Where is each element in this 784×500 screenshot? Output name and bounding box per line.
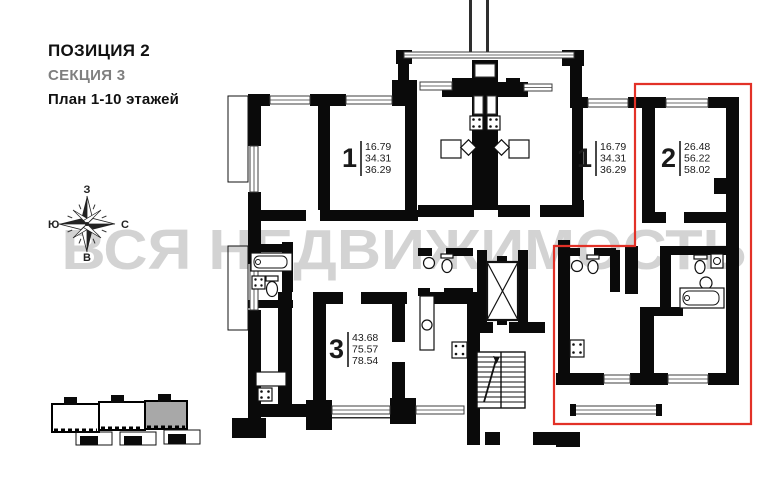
svg-text:36.29: 36.29 <box>600 164 626 176</box>
svg-text:34.31: 34.31 <box>365 153 391 165</box>
compass-label-top: З <box>84 184 91 196</box>
site-plan-section-3-highlighted <box>145 401 187 429</box>
apartment-label-2: 2 26.48 56.22 58.02 <box>661 141 710 176</box>
svg-text:16.79: 16.79 <box>365 141 391 153</box>
apartment-label-1a: 1 16.79 34.31 36.29 <box>342 141 391 176</box>
svg-text:56.22: 56.22 <box>684 153 710 165</box>
svg-text:34.31: 34.31 <box>600 153 626 165</box>
site-plan-section-2 <box>99 402 145 430</box>
apartment-number: 3 <box>329 334 344 364</box>
svg-text:75.57: 75.57 <box>352 344 378 356</box>
site-plan-thumbnail <box>52 394 200 445</box>
apartment-number: 2 <box>661 143 676 173</box>
compass-label-left: Ю <box>48 219 59 231</box>
svg-text:16.79: 16.79 <box>600 141 626 153</box>
svg-text:78.54: 78.54 <box>352 355 378 367</box>
floor-plan-canvas: ВСЯ НЕДВИЖИМОСТЬ <box>0 0 784 500</box>
apartment-label-1b: 1 16.79 34.31 36.29 <box>577 141 626 176</box>
compass-label-right: С <box>121 219 129 231</box>
apartment-number: 1 <box>342 143 357 173</box>
compass-label-bottom: В <box>83 252 91 264</box>
svg-text:58.02: 58.02 <box>684 164 710 176</box>
svg-text:43.68: 43.68 <box>352 332 378 344</box>
svg-text:26.48: 26.48 <box>684 141 710 153</box>
site-plan-section-1 <box>52 404 99 432</box>
apartment-label-3: 3 43.68 75.57 78.54 <box>329 332 378 367</box>
floor-plan-page: ПОЗИЦИЯ 2 СЕКЦИЯ 3 План 1-10 этажей ВСЯ … <box>0 0 784 500</box>
staircase <box>477 352 525 408</box>
apartment-number: 1 <box>577 143 592 173</box>
site-plan-entrances <box>76 430 200 445</box>
svg-text:36.29: 36.29 <box>365 164 391 176</box>
elevator <box>487 262 518 320</box>
watermark: ВСЯ НЕДВИЖИМОСТЬ <box>62 218 747 282</box>
